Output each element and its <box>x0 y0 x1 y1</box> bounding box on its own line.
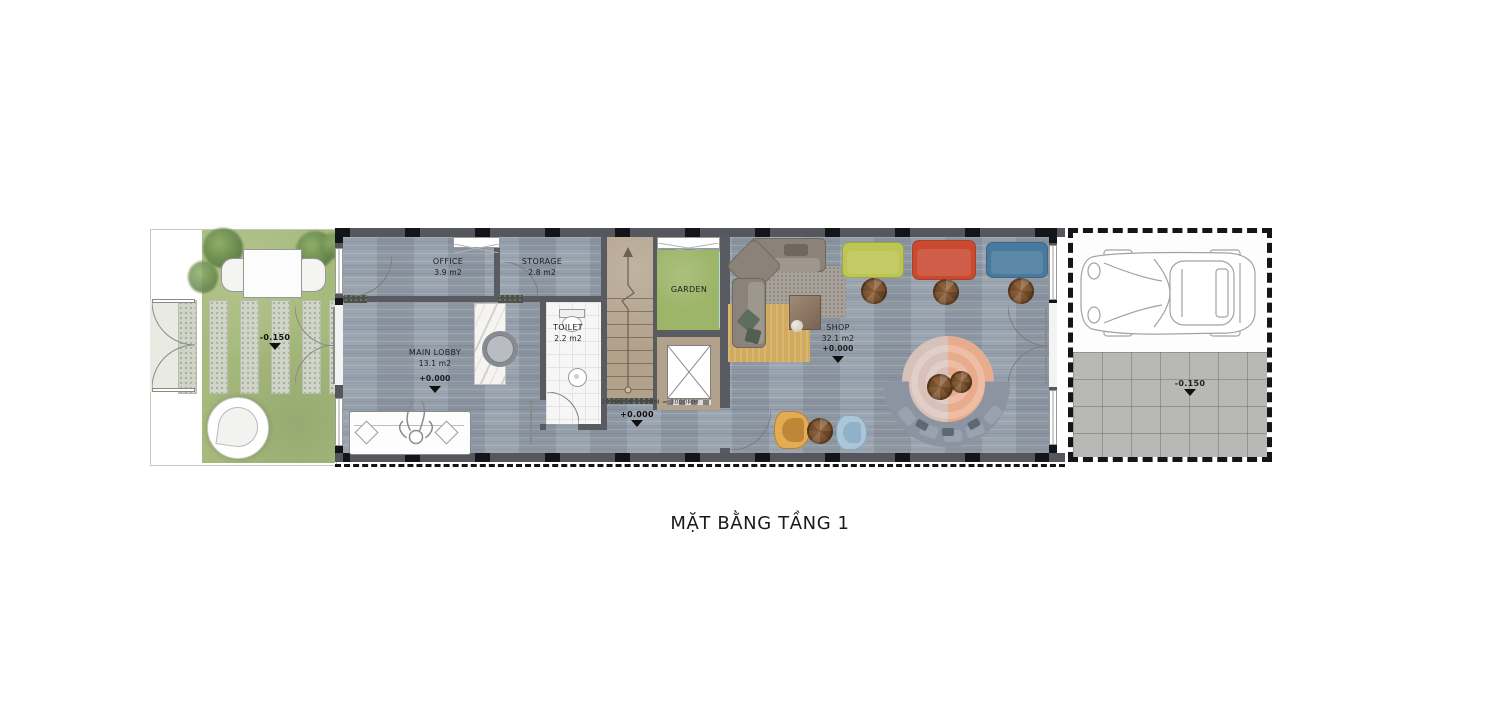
door-threshold <box>344 295 367 303</box>
gate-door-arc <box>152 302 195 345</box>
sofa-red <box>912 240 976 280</box>
level-triangle-icon <box>631 420 643 427</box>
garden-label: GARDEN <box>659 284 719 296</box>
window <box>335 398 343 446</box>
wall <box>343 296 607 302</box>
round-side-table <box>807 418 833 444</box>
wall <box>657 330 720 337</box>
round-side-table <box>1008 278 1034 304</box>
decor-ball <box>791 320 803 332</box>
floor-plan-canvas: -0.150 <box>0 0 1500 712</box>
main-lobby-label: MAIN LOBBY 13.1 m2 +0.000 <box>405 347 465 393</box>
shop-corridor-door-arc <box>731 410 771 450</box>
shop-area: 32.1 m2 <box>806 334 870 345</box>
elevator-cab <box>667 345 711 399</box>
sofa-seat <box>991 251 1043 274</box>
entrance-door-arc <box>295 345 335 385</box>
main-lobby-name: MAIN LOBBY <box>405 347 465 359</box>
rug-center-table <box>950 371 972 393</box>
corridor-door-leaf <box>530 400 532 444</box>
exterior-wall-top <box>335 228 1065 237</box>
car-icon <box>1078 249 1258 337</box>
sofa-blue <box>986 242 1048 278</box>
corridor-level-value: +0.000 <box>620 410 654 419</box>
office-top-window <box>453 237 500 248</box>
window <box>335 248 343 294</box>
toilet-sink-drain <box>574 374 579 379</box>
corridor-level: +0.000 <box>612 410 662 427</box>
office-door-arc <box>352 256 392 296</box>
wall <box>653 237 657 410</box>
parking-level-value: -0.150 <box>1175 379 1205 388</box>
shop-door-arc <box>1008 306 1048 346</box>
tree-icon <box>188 261 218 293</box>
garden-top-window <box>657 237 720 249</box>
sofa-headrest <box>784 244 808 256</box>
sofa-seat <box>917 249 971 276</box>
person-figure <box>388 396 444 450</box>
toilet-label: TOILET 2.2 m2 <box>542 322 594 344</box>
shop-door-opening <box>1049 303 1057 387</box>
garden-name: GARDEN <box>659 284 719 296</box>
window <box>1049 390 1057 445</box>
round-side-table <box>861 278 887 304</box>
reception-chair <box>482 331 518 367</box>
sofa-lime <box>842 242 904 278</box>
storage-name: STORAGE <box>512 256 572 268</box>
front-yard-level-value: -0.150 <box>260 333 290 342</box>
office-name: OFFICE <box>420 256 476 268</box>
entrance-opening <box>335 305 343 385</box>
parking-paving <box>1073 352 1267 457</box>
garden-table <box>243 249 302 298</box>
gate-leaf <box>152 388 195 392</box>
shop-door-arc <box>1008 346 1048 386</box>
property-dash-line <box>335 464 1065 467</box>
wall <box>578 424 607 430</box>
gravel-stripe <box>209 300 228 394</box>
rug-center-table <box>927 374 953 400</box>
main-lobby-area: 13.1 m2 <box>405 359 465 370</box>
page-title: MẶT BẰNG TẦNG 1 <box>0 513 1500 534</box>
curved-sofa-pillow <box>942 428 954 436</box>
wall <box>540 424 546 430</box>
shop-level: +0.000 <box>806 344 870 355</box>
shop-label: SHOP 32.1 m2 +0.000 <box>806 322 870 363</box>
gate-door-arc <box>152 345 195 388</box>
round-side-table <box>933 279 959 305</box>
office-label: OFFICE 3.9 m2 <box>420 256 476 278</box>
office-area: 3.9 m2 <box>420 268 476 279</box>
window <box>1049 245 1057 300</box>
level-triangle-icon <box>1184 389 1196 396</box>
tub-chair-yellow-seat <box>782 418 804 442</box>
toilet-name: TOILET <box>542 322 594 334</box>
level-triangle-icon <box>269 343 281 350</box>
tub-chair-blue-seat <box>843 422 861 443</box>
level-triangle-icon <box>832 356 844 363</box>
main-lobby-level: +0.000 <box>405 374 465 385</box>
garden-chair <box>300 258 326 292</box>
parking-level: -0.150 <box>1162 379 1218 396</box>
storage-label: STORAGE 2.8 m2 <box>512 256 572 278</box>
entrance-door-arc <box>295 306 335 346</box>
shop-name: SHOP <box>806 322 870 334</box>
level-triangle-icon <box>429 386 441 393</box>
sofa-seat <box>847 251 899 274</box>
wall <box>540 302 546 400</box>
toilet-door-arc <box>547 392 579 424</box>
stair-direction-arrow <box>620 247 636 395</box>
stair-note: 20 BẬC X 150MM = 3000MM <box>590 398 710 406</box>
storage-area: 2.8 m2 <box>512 268 572 279</box>
toilet-area: 2.2 m2 <box>542 334 594 345</box>
